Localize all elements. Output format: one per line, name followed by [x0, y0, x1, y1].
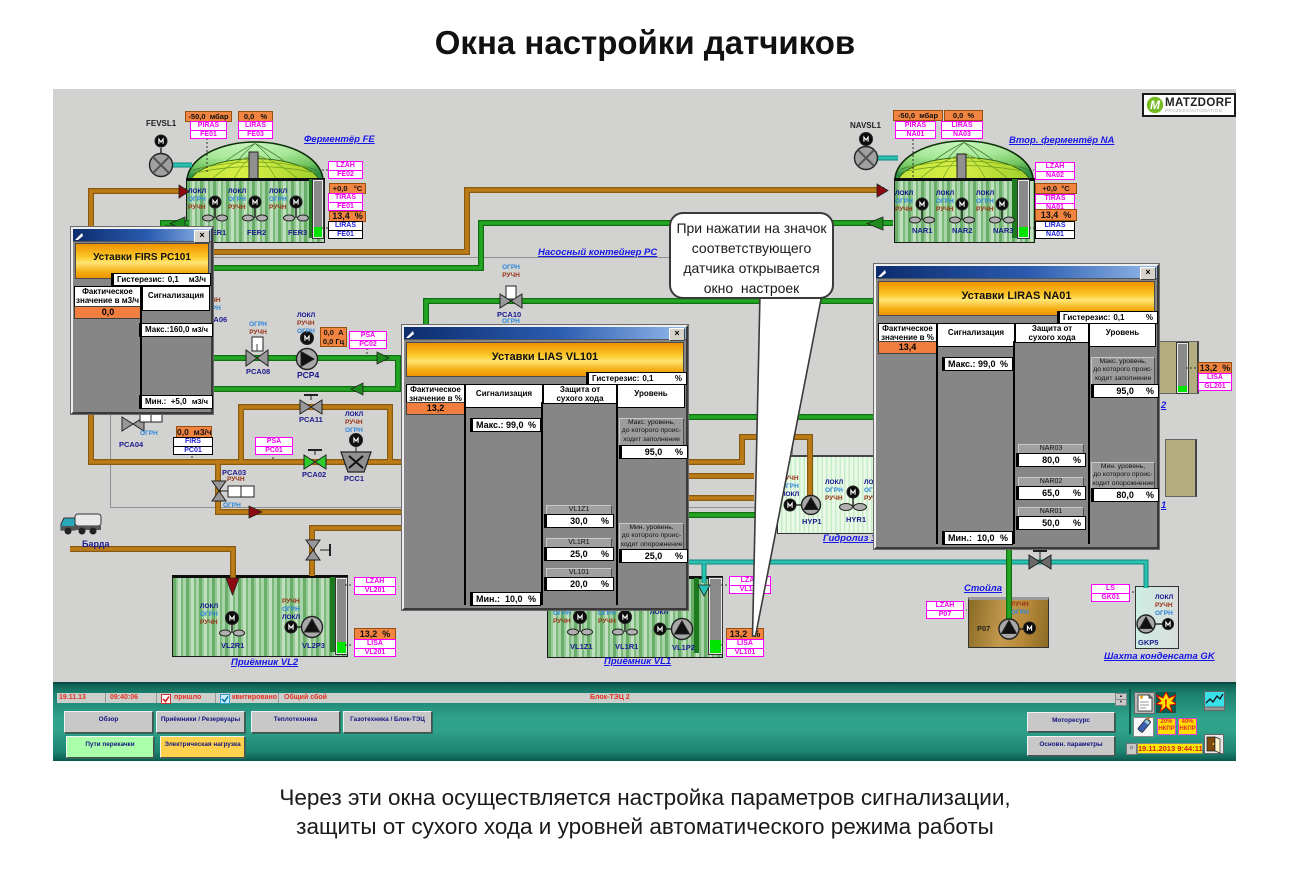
svg-text:M: M [1150, 98, 1161, 112]
svg-text:!: ! [1164, 698, 1168, 710]
